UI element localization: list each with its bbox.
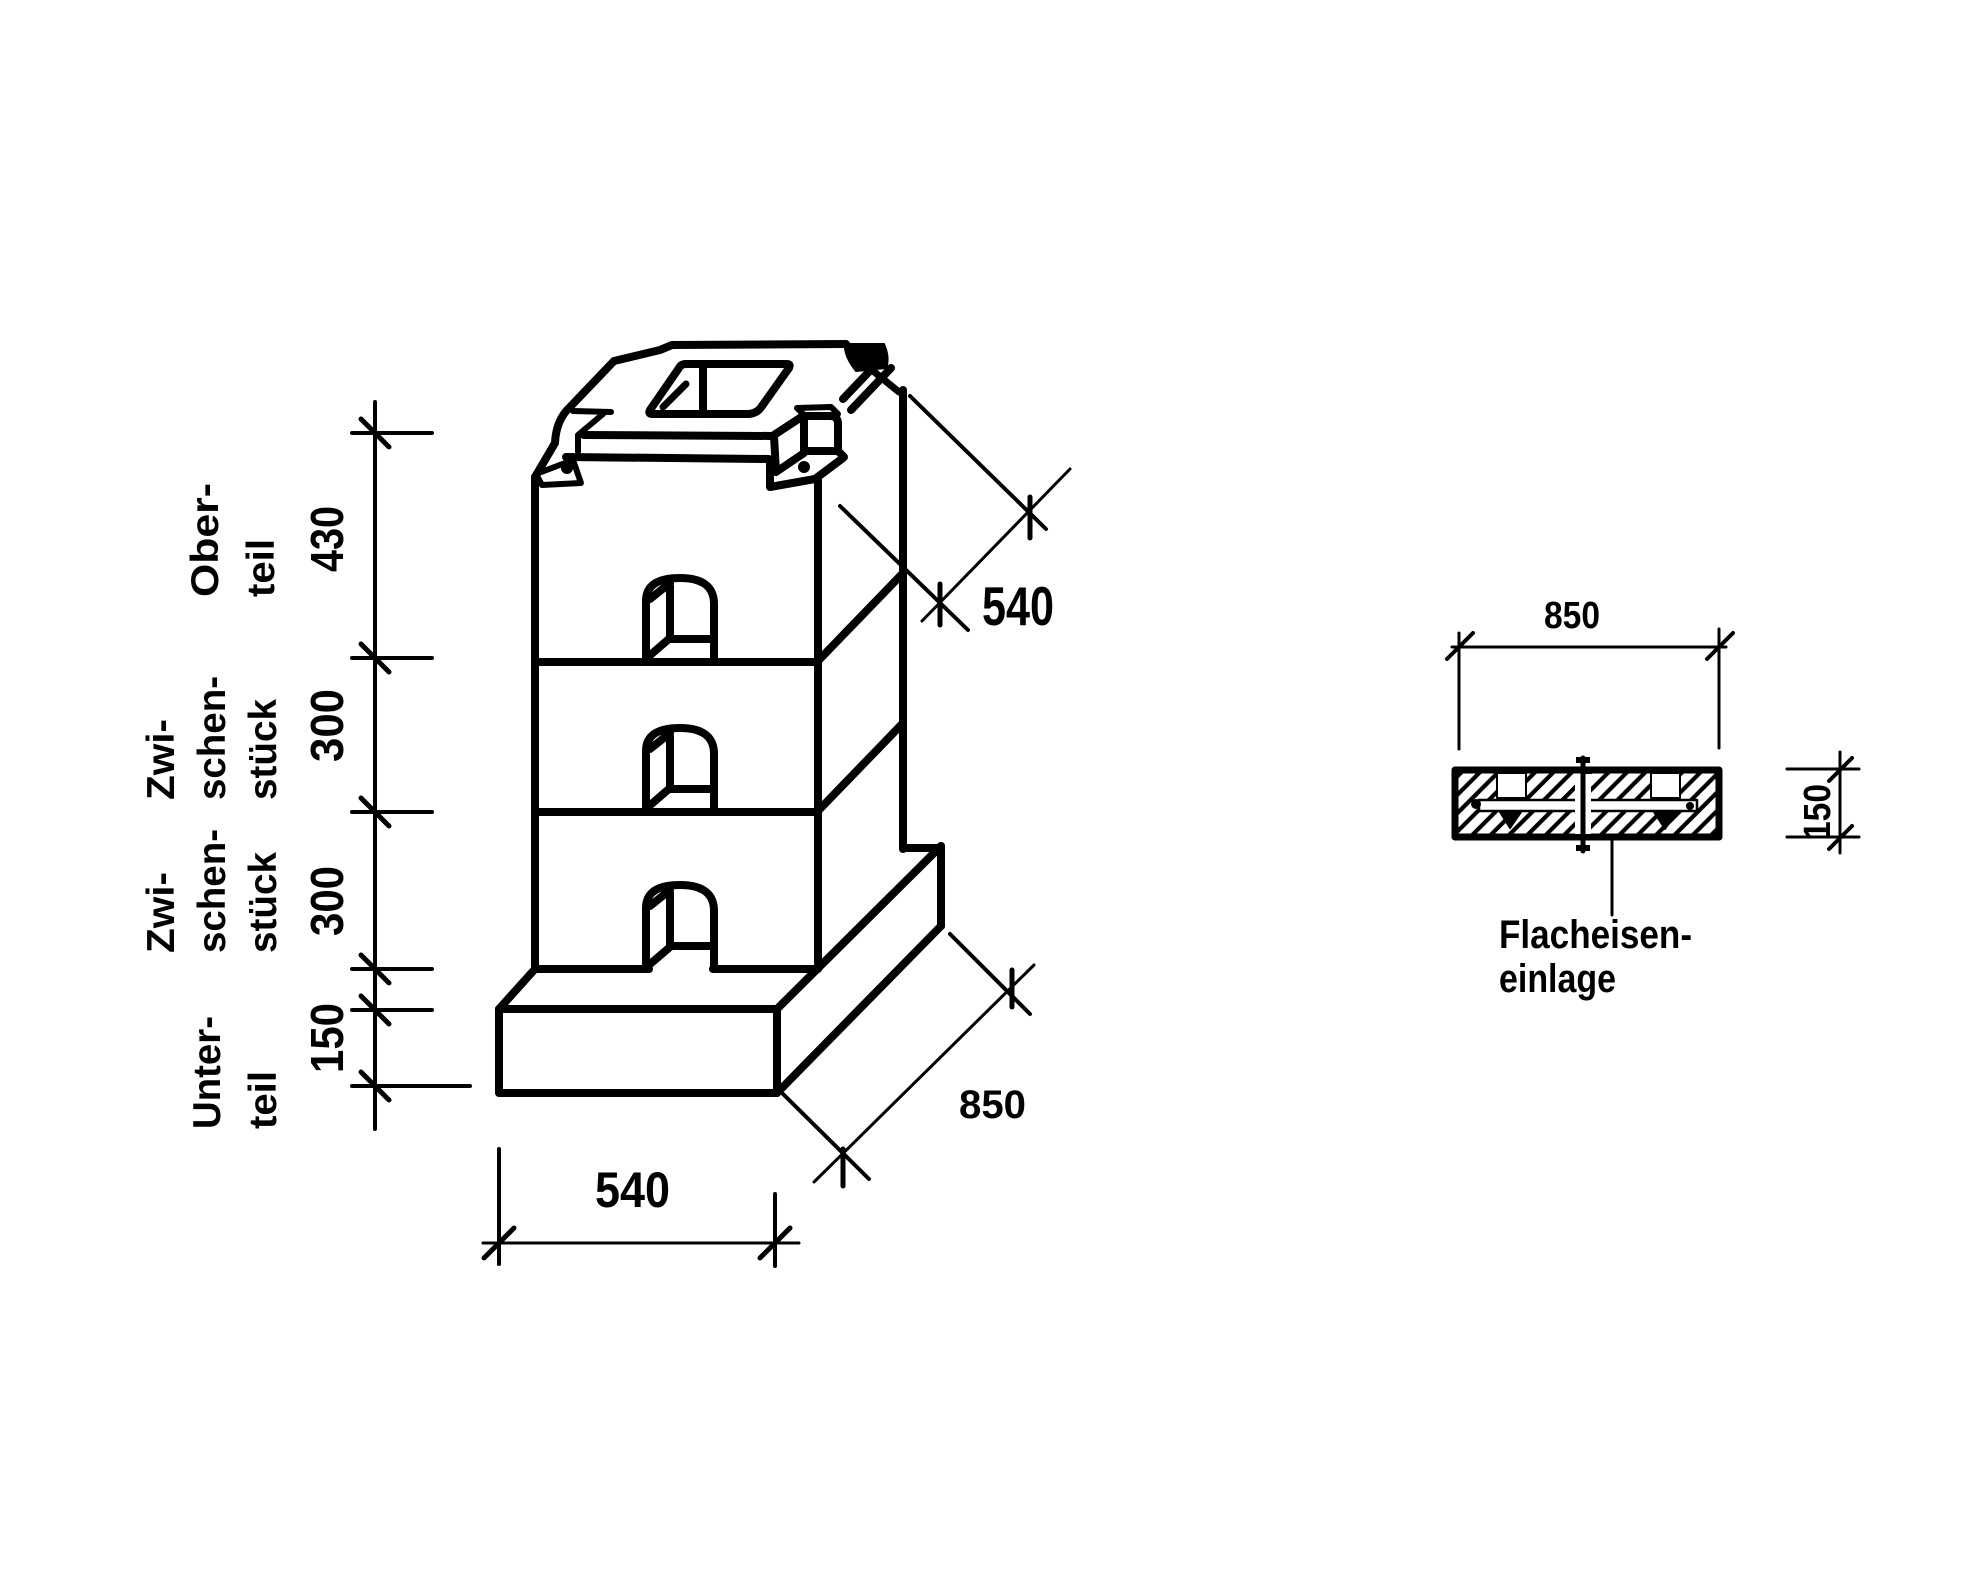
svg-text:Zwi-: Zwi- xyxy=(140,719,183,800)
svg-text:stück: stück xyxy=(242,699,285,800)
svg-text:teil: teil xyxy=(242,1071,285,1129)
svg-text:300: 300 xyxy=(301,866,353,936)
svg-text:teil: teil xyxy=(240,539,283,597)
svg-text:540: 540 xyxy=(595,1162,670,1218)
svg-text:Unter-: Unter- xyxy=(186,1016,229,1129)
svg-text:Ober-: Ober- xyxy=(184,483,227,597)
svg-text:300: 300 xyxy=(301,689,353,762)
svg-text:850: 850 xyxy=(1544,595,1600,637)
svg-text:Flacheisen-: Flacheisen- xyxy=(1499,913,1692,957)
svg-text:Zwi-: Zwi- xyxy=(140,872,183,953)
svg-text:stück: stück xyxy=(242,852,285,953)
svg-text:540: 540 xyxy=(982,575,1054,637)
svg-text:einlage: einlage xyxy=(1499,957,1616,1001)
svg-text:850: 850 xyxy=(959,1083,1026,1127)
svg-text:150: 150 xyxy=(301,1003,353,1073)
svg-text:430: 430 xyxy=(301,506,353,572)
svg-text:schen-: schen- xyxy=(191,829,234,953)
svg-text:schen-: schen- xyxy=(191,676,234,800)
svg-text:150: 150 xyxy=(1797,784,1839,840)
